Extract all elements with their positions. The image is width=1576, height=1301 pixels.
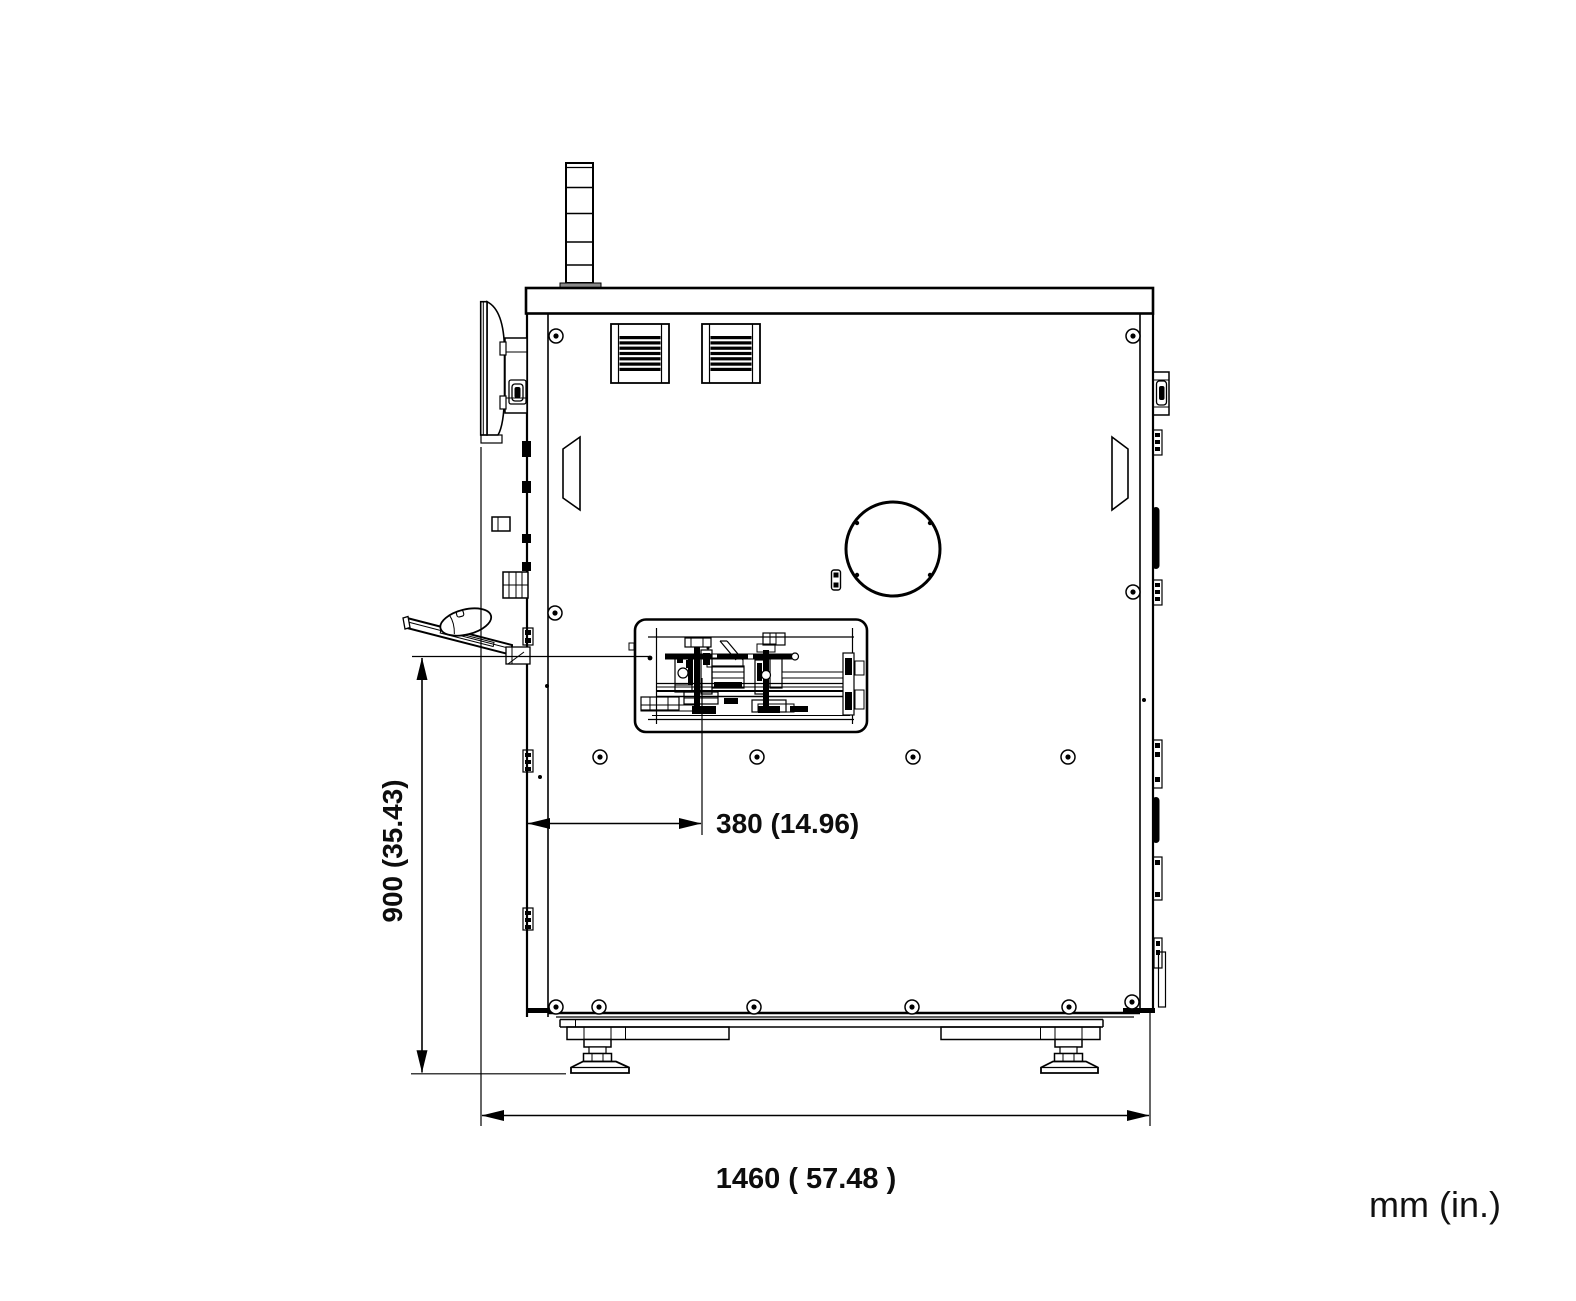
dimension-height: 900 (35.43) (377, 658, 428, 1073)
rear-bottom-step (1123, 1008, 1155, 1013)
dimension-total-depth: 1460 ( 57.48 ) (482, 1110, 1150, 1195)
handle-recess-left (563, 437, 580, 510)
rear-latch-low (1153, 857, 1162, 900)
rear-latch-bottom (1154, 938, 1166, 1007)
signal-tower (560, 163, 601, 289)
rear-strip-2 (1153, 797, 1160, 843)
rear-edge-fittings (1153, 372, 1170, 1007)
dimension-table-depth: 380 (14.96) (528, 808, 860, 839)
fan-port (846, 502, 940, 596)
top-plate (526, 288, 1153, 314)
foot-plate-left (567, 1027, 729, 1040)
front-latch-4 (522, 562, 531, 571)
dimension-height-label: 900 (35.43) (377, 779, 408, 922)
vent-left (611, 324, 669, 383)
front-shelf-bracket (492, 517, 510, 531)
drawing-canvas: 900 (35.43) 380 (14.96) 1460 ( 57.48 ) m… (0, 0, 1576, 1301)
dimension-total-depth-label: 1460 ( 57.48 ) (716, 1163, 897, 1195)
vent-right (702, 324, 760, 383)
unit-label: mm (in.) (1369, 1184, 1501, 1225)
rear-latch-top (1153, 372, 1169, 415)
front-slot-latch-2 (523, 908, 533, 930)
foot-plate-right (941, 1027, 1100, 1040)
rear-latch-mid (1153, 740, 1162, 788)
front-slot-latch-1 (523, 750, 533, 772)
base-frame (560, 1020, 1103, 1040)
leveling-foot-right (1041, 1040, 1098, 1074)
front-latch-1 (522, 441, 531, 457)
dimension-table-depth-label: 380 (14.96) (716, 808, 859, 839)
front-latch-3 (522, 534, 531, 543)
rear-hinge-2 (1153, 580, 1162, 605)
tray-support (506, 647, 530, 664)
rear-strip-1 (1153, 507, 1160, 569)
technical-drawing: 900 (35.43) 380 (14.96) 1460 ( 57.48 ) m… (0, 0, 1576, 1301)
rear-hinge-1 (1153, 430, 1162, 455)
handle-recess-right (1112, 437, 1128, 510)
front-junction-box (503, 572, 528, 598)
leveling-foot-left (571, 1040, 629, 1074)
machine-outline (403, 163, 1169, 1073)
front-latch-2 (522, 481, 531, 493)
connector-port (832, 570, 841, 590)
monitor (481, 302, 505, 443)
